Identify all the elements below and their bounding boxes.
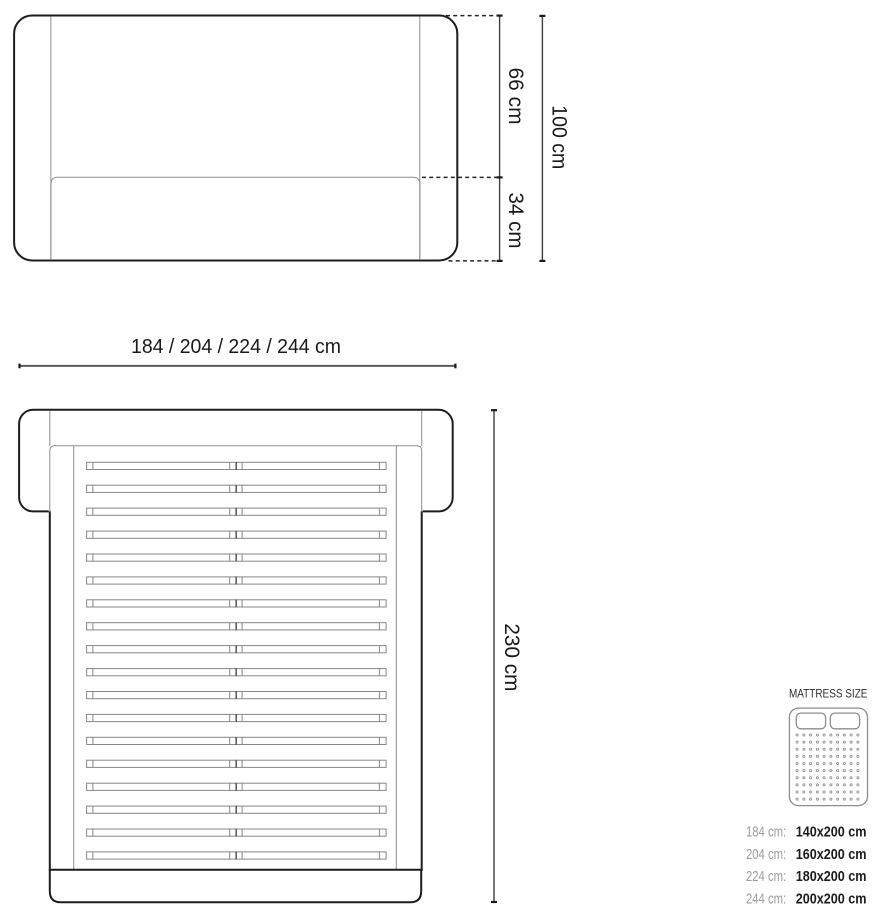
- svg-text:66 cm: 66 cm: [504, 68, 527, 125]
- svg-text:204 cm:: 204 cm:: [746, 847, 786, 863]
- svg-text:184 / 204 / 224 / 244 cm: 184 / 204 / 224 / 244 cm: [131, 335, 341, 358]
- svg-text:34 cm: 34 cm: [504, 193, 527, 249]
- svg-text:100 cm: 100 cm: [547, 105, 570, 169]
- svg-text:224 cm:: 224 cm:: [746, 869, 786, 885]
- svg-text:140x200 cm: 140x200 cm: [796, 825, 867, 841]
- svg-text:160x200 cm: 160x200 cm: [796, 847, 867, 863]
- svg-text:244 cm:: 244 cm:: [746, 892, 786, 908]
- svg-text:230 cm: 230 cm: [500, 623, 523, 691]
- svg-text:200x200 cm: 200x200 cm: [796, 892, 867, 908]
- svg-text:184 cm:: 184 cm:: [746, 825, 786, 841]
- svg-text:180x200 cm: 180x200 cm: [796, 869, 867, 885]
- svg-text:MATTRESS SIZE: MATTRESS SIZE: [789, 687, 868, 701]
